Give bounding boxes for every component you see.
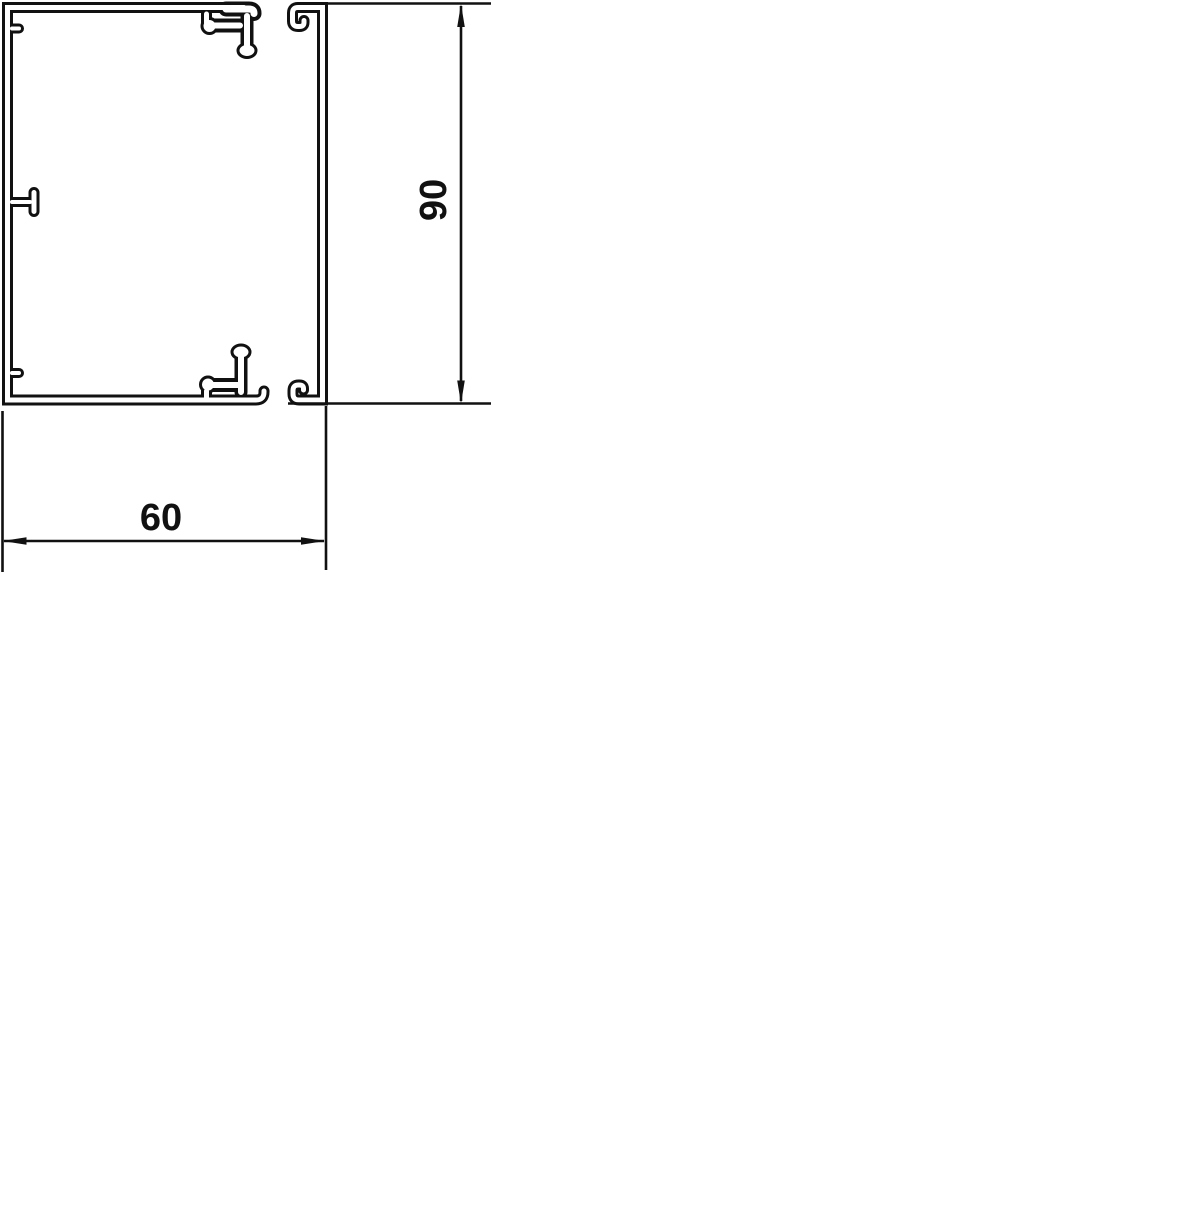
- technical-drawing-page: 90 60: [0, 0, 1200, 1200]
- arrow-down-icon: [457, 381, 465, 404]
- base-outline: [8, 8, 265, 401]
- cover-profile: [293, 8, 323, 401]
- base-snap-stems: [241, 16, 247, 392]
- base-snap-stems-inner: [241, 16, 247, 392]
- arrow-right-icon: [301, 537, 325, 545]
- dimension-label-height: 90: [413, 179, 455, 221]
- dimension-width: 60: [3, 406, 327, 572]
- base-profile: [8, 8, 265, 401]
- base-outline-inner: [8, 8, 265, 401]
- dimension-label-width: 60: [140, 497, 182, 539]
- arrow-left-icon: [3, 537, 27, 545]
- base-snap-bars-inner: [212, 26, 240, 386]
- base-snap-bars: [212, 26, 240, 386]
- base-wall-notches-and-stud-inner: [12, 29, 30, 374]
- arrow-up-icon: [457, 4, 465, 27]
- cover-outline: [293, 8, 323, 401]
- technical-drawing: 90 60: [0, 0, 1200, 1200]
